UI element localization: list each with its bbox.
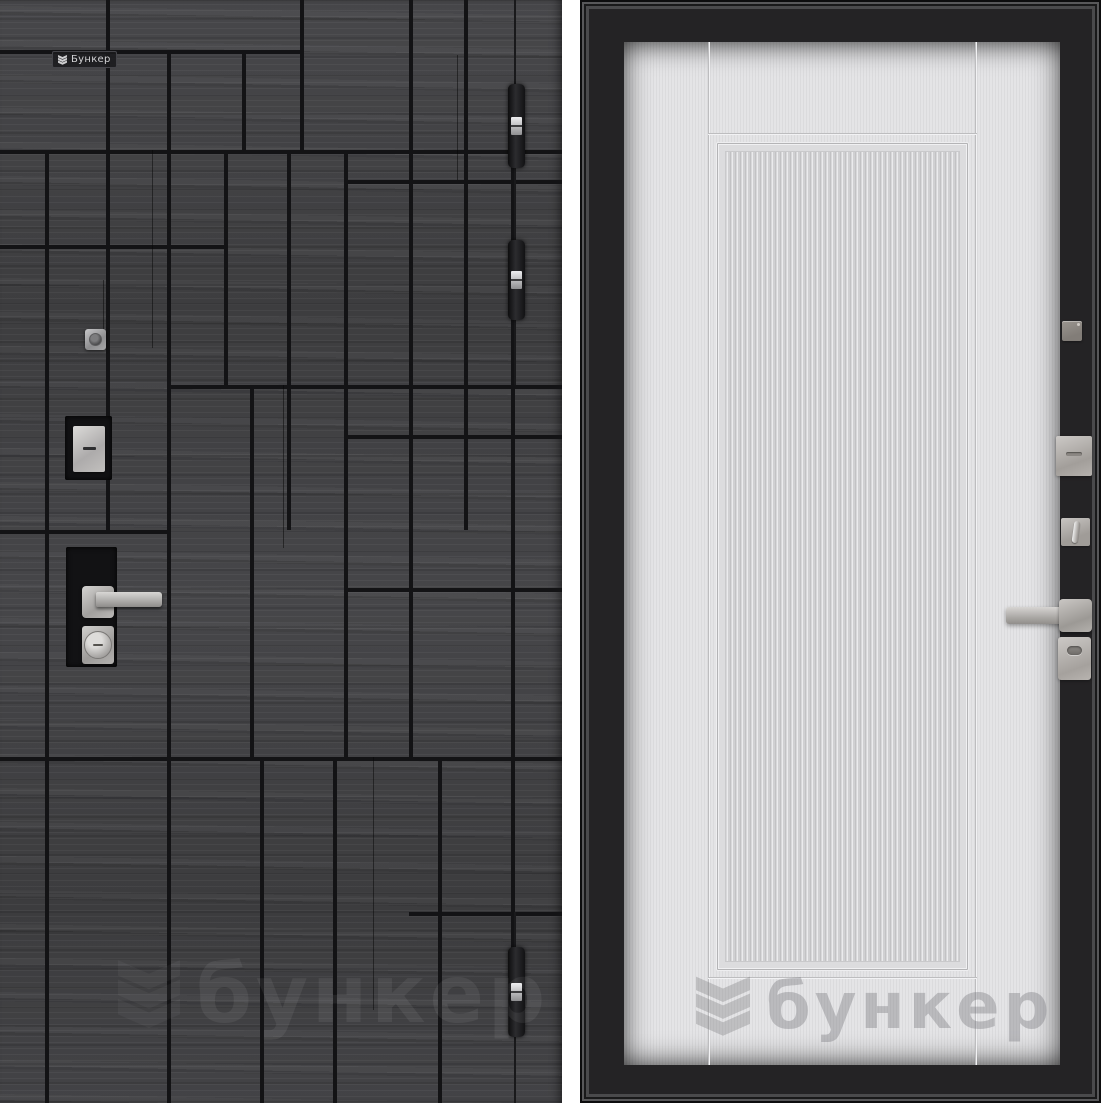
lock-cover-icon bbox=[73, 426, 105, 472]
lock-plate-icon bbox=[1056, 436, 1092, 476]
panel-seam bbox=[45, 150, 49, 1103]
peephole-cover-icon bbox=[1062, 321, 1082, 341]
hinge-icon bbox=[508, 84, 525, 168]
wood-crack bbox=[457, 55, 458, 180]
watermark-text: бункер bbox=[766, 970, 1053, 1044]
panel-seam bbox=[333, 757, 337, 1103]
hinge-axis-groove bbox=[514, 0, 516, 385]
door-frame: бункер bbox=[580, 0, 1101, 1103]
watermark-text: бункер bbox=[196, 948, 549, 1041]
peephole-lens bbox=[89, 333, 102, 346]
exterior-door-panel: Бункер bbox=[0, 0, 562, 1103]
panel-seam bbox=[409, 0, 413, 757]
panel-seam bbox=[0, 50, 300, 54]
brand-watermark: бункер bbox=[696, 970, 1053, 1044]
peephole-icon bbox=[85, 329, 106, 350]
panel-seam bbox=[344, 588, 562, 592]
hinge-pin bbox=[511, 117, 522, 135]
brand-badge: Бункер bbox=[52, 51, 117, 68]
keyhole-escutcheon-icon bbox=[1058, 637, 1091, 680]
lock-cylinder-icon bbox=[84, 631, 112, 659]
panel-seam bbox=[344, 150, 348, 757]
hinge-pin bbox=[511, 271, 522, 289]
fluted-ribs bbox=[725, 151, 960, 962]
brand-badge-label: Бункер bbox=[71, 55, 111, 65]
panel-seam bbox=[242, 50, 246, 150]
panel-seam bbox=[344, 180, 562, 184]
wood-crack bbox=[103, 280, 104, 335]
brand-chevron-icon bbox=[118, 960, 180, 1030]
panel-seam bbox=[250, 385, 254, 757]
panel-seam bbox=[0, 757, 562, 761]
brand-watermark: бункер bbox=[118, 948, 549, 1041]
panel-seam bbox=[300, 0, 304, 150]
panel-groove bbox=[708, 42, 710, 1065]
panel-seam bbox=[167, 50, 171, 1103]
panel-seam bbox=[0, 245, 224, 249]
thumbturn-knob bbox=[1071, 521, 1080, 544]
brand-chevron-icon bbox=[58, 55, 67, 65]
panel-groove bbox=[708, 133, 977, 135]
panel-seam bbox=[464, 0, 468, 530]
panel-seam bbox=[409, 912, 562, 916]
keyhole bbox=[1067, 646, 1082, 655]
lever-handle-icon bbox=[96, 592, 162, 607]
wood-crack bbox=[283, 385, 284, 548]
thumbturn-icon bbox=[1061, 518, 1090, 546]
door-product-image: Бункер bbox=[0, 0, 1101, 1103]
interior-door-leaf: бункер bbox=[624, 42, 1060, 1065]
fluted-panel bbox=[717, 143, 968, 970]
panel-seam bbox=[260, 757, 264, 1103]
panel-groove bbox=[975, 42, 977, 1065]
panel-seam bbox=[438, 757, 442, 1103]
hinge-icon bbox=[508, 240, 525, 320]
lock-slot bbox=[1066, 452, 1082, 456]
lock-slot bbox=[83, 447, 96, 450]
panel-seam bbox=[0, 150, 562, 154]
panel-seam bbox=[0, 530, 167, 534]
panel-seam bbox=[167, 385, 562, 389]
brand-chevron-icon bbox=[696, 976, 750, 1038]
panel-seam bbox=[287, 150, 291, 530]
handle-rosette bbox=[1059, 599, 1092, 632]
panel-seam bbox=[344, 435, 562, 439]
panel-seam bbox=[224, 150, 228, 385]
wood-crack bbox=[152, 150, 153, 348]
